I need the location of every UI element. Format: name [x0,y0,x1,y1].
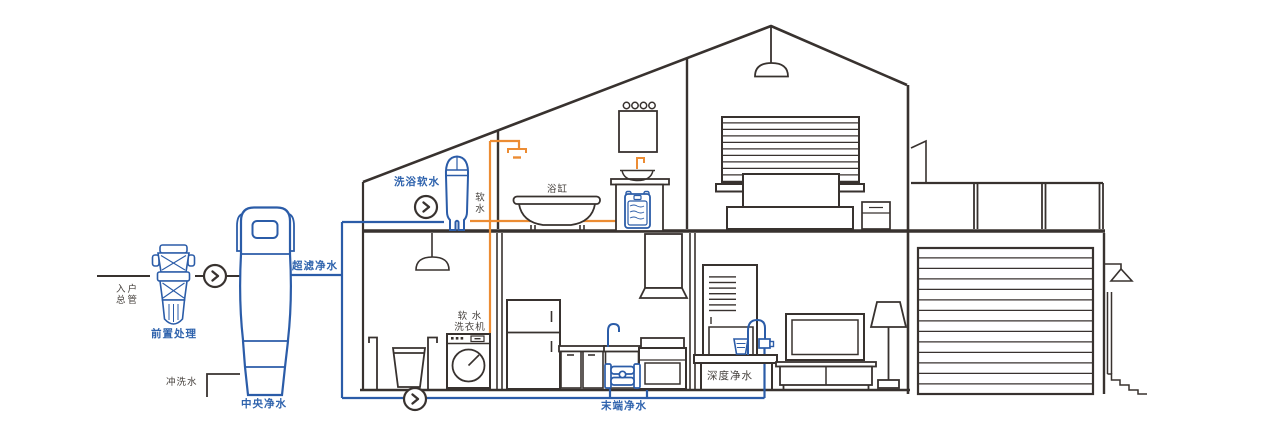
flow-direction-icon [415,196,437,218]
bathtub [514,197,601,232]
flow-direction-icon [204,265,226,287]
wall-laundry-kitchen [497,233,502,390]
wall-lamp [1104,264,1132,281]
diagram-canvas [0,0,1280,434]
soft-water-washer-label: 软 水 洗衣机 [451,312,489,333]
bed-base [727,207,853,229]
flow-direction-icon [404,388,426,410]
tv [786,314,864,360]
bathtub-label: 浴缸 [547,184,568,195]
kitchen-faucet [608,324,619,347]
nightstand [862,202,890,229]
washing-machine [447,334,490,388]
range-hood [640,234,687,298]
bath-softener-label: 洗浴软水 [394,177,440,188]
steps [1108,374,1148,394]
bath-softener-tank [446,157,468,231]
house-water-system-diagram: 入户 总管 前置处理 冲洗水 中央净水 超滤净水 洗浴软水 软水 浴缸 软 水 … [0,0,1280,434]
under-sink-purifier [625,192,650,229]
deep-purifier-label: 深度净水 [707,371,753,382]
flush-water-drain [207,374,240,397]
bed-headboard [743,174,839,207]
pre-treatment-label: 前置处理 [151,329,197,340]
kitchen [507,234,687,389]
garage-railing [911,141,1103,229]
terminal-ro-unit [605,364,640,388]
central-purifier-tank [237,208,294,396]
inlet-main-label: 入户 总管 [116,284,139,306]
window-blinds [722,117,859,182]
central-purifier-label: 中央净水 [241,399,287,410]
vanity-faucet [637,158,644,169]
pendant-lamp-bedroom [755,27,788,77]
pendant-lamp-laundry [416,233,449,270]
dispenser-cup [734,339,748,354]
kitchen-cabinets [559,346,605,388]
soft-water-label: 软水 [473,192,484,215]
flush-water-label: 冲洗水 [166,377,198,388]
bedroom [716,27,890,229]
floor-lamp [871,302,906,388]
roof-flashing [911,141,926,183]
oven [639,338,686,389]
pre-treatment-filter [153,245,195,324]
ultrafiltration-label: 超滤净水 [292,261,338,272]
shower-head [508,149,526,158]
downspout [1108,292,1148,394]
garage-door [918,248,1093,394]
terminal-purifier-label: 末端净水 [601,401,647,412]
wall-kitchen-living [690,233,695,390]
refrigerator [507,300,560,389]
laundry-sink [369,338,437,390]
tv-stand [776,362,876,389]
garage [911,141,1147,394]
mirror [619,102,657,152]
wall-lamp-shade [1111,269,1132,281]
